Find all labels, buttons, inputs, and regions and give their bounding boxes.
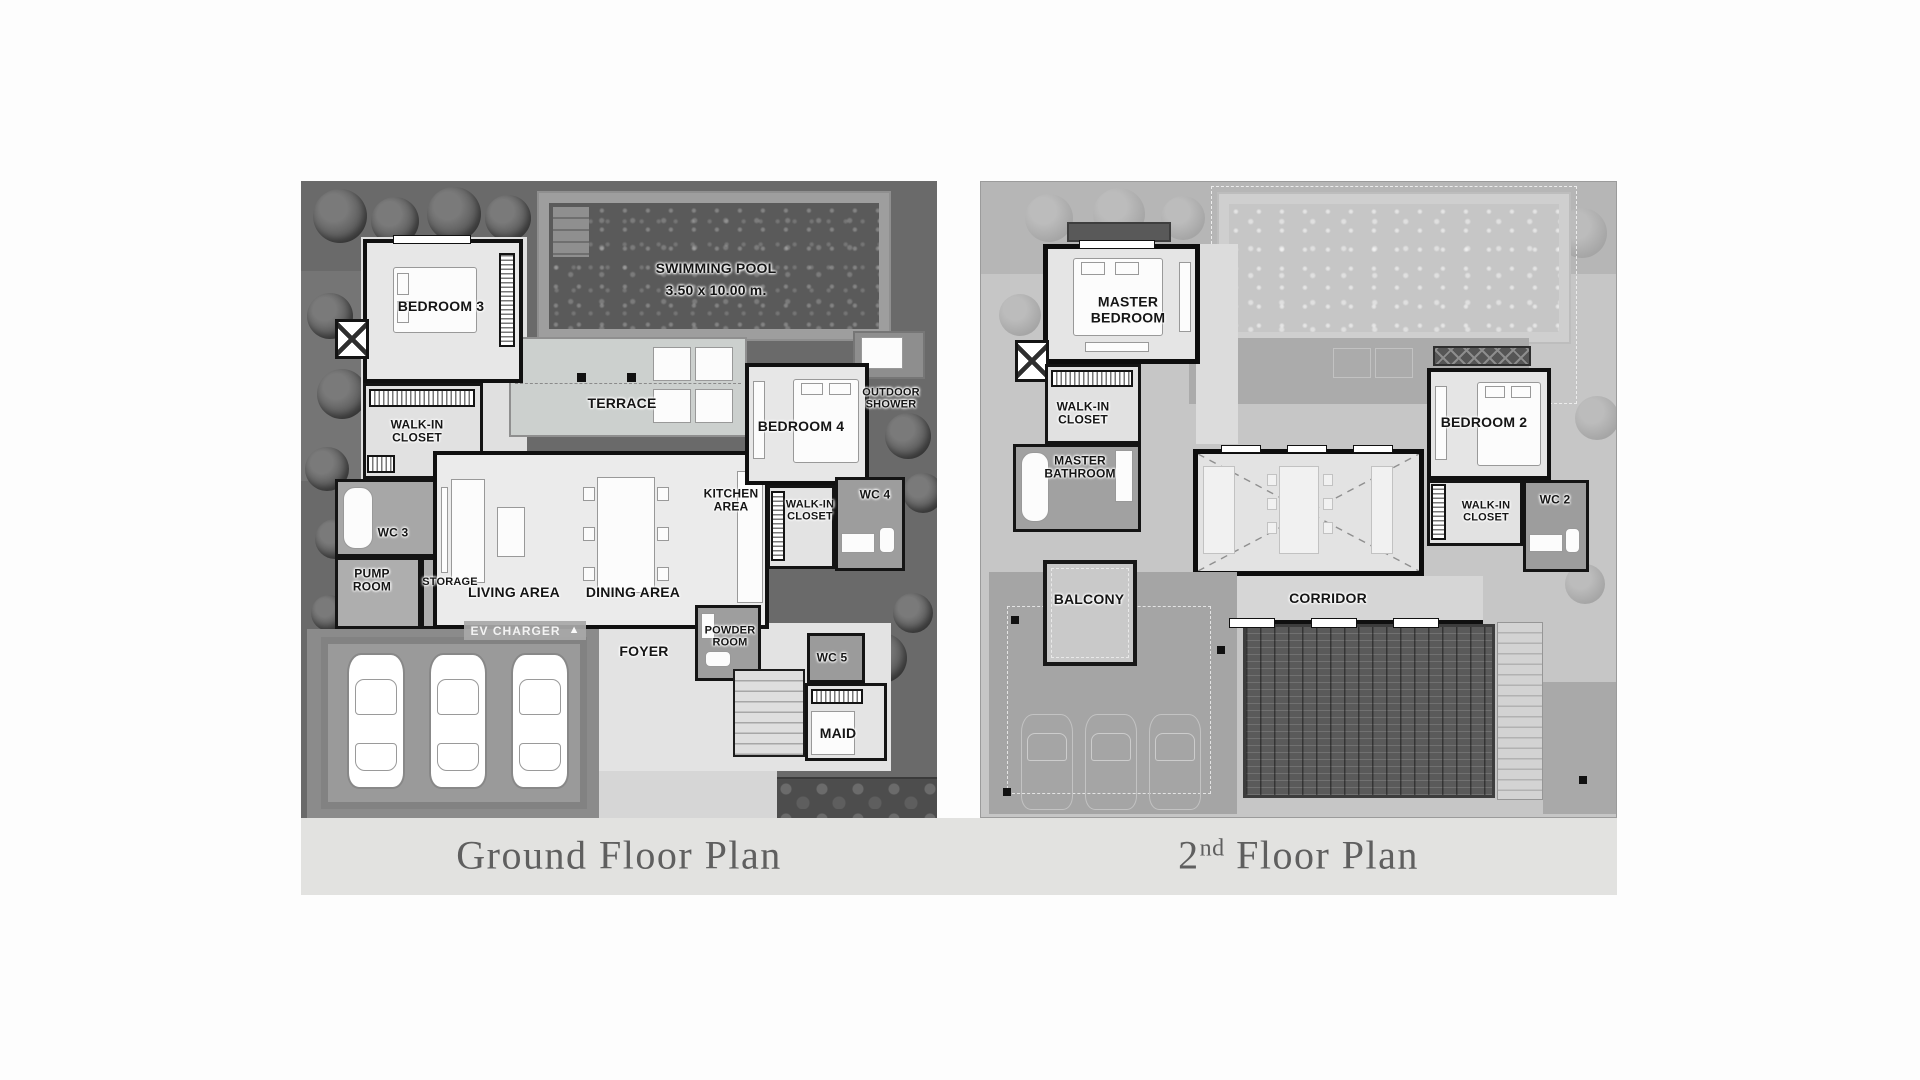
second-floor-caption-ordinal: nd <box>1200 835 1225 861</box>
master-bedroom-label: MASTER BEDROOM <box>1081 294 1175 325</box>
corner-roof <box>1543 682 1617 814</box>
lounger <box>695 389 733 423</box>
pillow <box>1081 262 1105 275</box>
toilet <box>705 651 731 667</box>
pillow <box>829 383 851 395</box>
stairs <box>733 669 805 757</box>
walk-in-closet-1-label: WALK-IN CLOSET <box>381 419 453 446</box>
wardrobe <box>499 253 515 347</box>
walk-in-closet-master-label: WALK-IN CLOSET <box>1048 401 1118 428</box>
toilet <box>879 527 895 553</box>
walk-in-closet-2-label: WALK-IN CLOSET <box>781 499 839 524</box>
chair <box>1267 474 1277 486</box>
ghost-car <box>1149 714 1201 810</box>
wc-4-label: WC 4 <box>860 488 891 501</box>
column-marker <box>1217 646 1225 654</box>
sofa <box>1203 466 1235 554</box>
window <box>1393 618 1439 628</box>
ghost-car <box>1085 714 1137 810</box>
tiled-roof <box>1243 624 1495 798</box>
terrace-marker <box>577 373 586 382</box>
coffee-table <box>497 507 525 557</box>
chair <box>583 527 595 541</box>
tree <box>893 593 933 633</box>
vanity <box>841 533 875 553</box>
kitchen-island <box>1371 466 1393 554</box>
tree <box>427 187 481 241</box>
chair <box>657 527 669 541</box>
chair <box>1267 498 1277 510</box>
corridor-label: CORRIDOR <box>1289 591 1367 607</box>
ground-floor-plan: SWIMMING POOL 3.50 x 10.00 m. OUTDOOR SH… <box>301 181 937 818</box>
master-bathroom-label: MASTER BATHROOM <box>1036 455 1124 482</box>
ground-floor-caption: Ground Floor Plan <box>301 831 937 878</box>
wc-2-label: WC 2 <box>1540 493 1571 506</box>
second-floor-caption: 2nd Floor Plan <box>980 831 1617 878</box>
window <box>1079 240 1155 249</box>
chair <box>657 487 669 501</box>
window <box>1229 618 1275 628</box>
lounger <box>653 347 691 381</box>
pool-steps <box>553 207 589 257</box>
second-floor-plan: MASTER BEDROOM WALK-IN CLOSET MASTER BAT… <box>980 181 1617 818</box>
walk-in-closet-2f-label: WALK-IN CLOSET <box>1456 500 1516 525</box>
kitchen-area-label: KITCHEN AREA <box>698 488 764 515</box>
tree <box>485 195 531 241</box>
tree <box>903 473 937 513</box>
living-area-label: LIVING AREA <box>468 585 560 601</box>
lounger <box>1375 348 1413 378</box>
ev-charger-label: EV CHARGER <box>471 624 561 638</box>
closet-shelf <box>367 455 395 473</box>
window <box>1311 618 1357 628</box>
lounger <box>1333 348 1371 378</box>
tree <box>1575 396 1617 440</box>
planter-box <box>1433 346 1531 366</box>
balcony-label: BALCONY <box>1054 592 1125 608</box>
caption-strip: Ground Floor Plan 2nd Floor Plan <box>301 818 1617 895</box>
tree <box>1025 194 1073 242</box>
tree <box>317 369 367 419</box>
tree <box>999 294 1041 336</box>
bedroom-3-label: BEDROOM 3 <box>398 299 485 315</box>
pillow <box>397 273 409 295</box>
pillow <box>801 383 823 395</box>
closet-shelf <box>1431 484 1446 540</box>
page: SWIMMING POOL 3.50 x 10.00 m. OUTDOOR SH… <box>0 0 1920 1080</box>
vanity <box>1529 534 1563 552</box>
bedroom-4-label: BEDROOM 4 <box>755 419 847 435</box>
column-marker <box>1011 616 1019 624</box>
chair <box>1323 474 1333 486</box>
window <box>1287 445 1327 453</box>
bench <box>1085 342 1149 352</box>
chair <box>1323 498 1333 510</box>
chair <box>583 567 595 581</box>
bathtub <box>343 487 373 549</box>
window <box>393 235 471 244</box>
column-marker <box>1579 776 1587 784</box>
dining-table <box>597 477 655 593</box>
car <box>429 653 487 789</box>
closet-shelf <box>811 689 863 704</box>
powder-room-label: POWDER ROOM <box>699 625 761 650</box>
chair <box>583 487 595 501</box>
ev-charger-strip: EV CHARGER ▲ <box>464 621 586 640</box>
lounger <box>695 347 733 381</box>
ev-charger-arrow-icon: ▲ <box>569 625 580 636</box>
ground-floor-caption-text: Ground Floor Plan <box>456 832 782 877</box>
tree <box>313 189 367 243</box>
outdoor-shower-label: OUTDOOR SHOWER <box>851 387 931 412</box>
wc-5-label: WC 5 <box>817 651 848 664</box>
cabinet <box>1179 262 1191 332</box>
planter-shaft-icon <box>335 319 369 359</box>
second-floor-caption-text: Floor Plan <box>1225 832 1419 877</box>
foyer-label: FOYER <box>619 644 668 660</box>
chair <box>1267 522 1277 534</box>
chair <box>1323 522 1333 534</box>
bedroom-2-label: BEDROOM 2 <box>1436 415 1532 431</box>
window <box>1221 445 1261 453</box>
pillow <box>1511 386 1531 398</box>
pillow <box>1115 262 1139 275</box>
lounger <box>653 389 691 423</box>
maid-label: MAID <box>820 726 857 742</box>
pump-room-label: PUMP ROOM <box>347 568 397 595</box>
terrace-label: TERRACE <box>587 396 656 412</box>
wc-3-label: WC 3 <box>378 526 409 539</box>
ghost-stairs <box>1497 622 1543 800</box>
tree <box>885 413 931 459</box>
toilet <box>1565 528 1580 553</box>
sofa <box>451 479 485 583</box>
car <box>347 653 405 789</box>
landing <box>1196 244 1238 444</box>
planter-box <box>1067 222 1171 242</box>
dining-area-label: DINING AREA <box>586 585 680 601</box>
elevator-shaft-icon <box>1015 340 1049 382</box>
swimming-pool-size-label: 3.50 x 10.00 m. <box>665 283 766 299</box>
tv-console <box>441 487 448 573</box>
swimming-pool-label: SWIMMING POOL <box>656 261 777 277</box>
balcony-outline <box>1051 568 1129 658</box>
closet-shelf <box>1051 370 1133 387</box>
terrace-marker <box>627 373 636 382</box>
dining-table <box>1279 466 1319 554</box>
chair <box>657 567 669 581</box>
planting-strip <box>777 777 937 818</box>
car <box>511 653 569 789</box>
window <box>1353 445 1393 453</box>
ghost-car <box>1021 714 1073 810</box>
second-floor-caption-number: 2 <box>1178 832 1200 877</box>
pillow <box>1485 386 1505 398</box>
closet-shelf <box>369 389 475 407</box>
terrace-guide <box>515 383 741 384</box>
column-marker <box>1003 788 1011 796</box>
